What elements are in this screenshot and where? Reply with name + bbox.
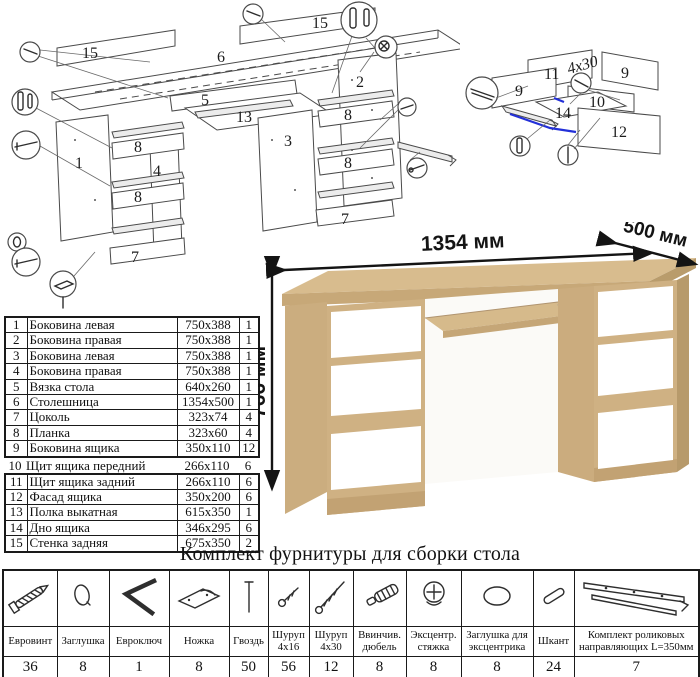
screw-callout-icon [407,158,427,178]
hardware-quantities-row: 36 8 1 8 50 56 12 8 8 8 24 7 [3,657,699,677]
parts-table-block-2: 11Щит ящика задний266x1106 12Фасад ящика… [4,473,260,553]
nail-icon [231,571,267,621]
dowel-callout-icon [398,98,416,116]
hardware-name: Шуруп 4x30 [309,627,353,657]
part-label: 8 [134,189,142,206]
part-label: 8 [344,155,352,172]
hardware-name: Эксцентр. стяжка [406,627,461,657]
dowel-pair-callout-icon [341,2,377,38]
width-dimension-label: 1354 мм [420,229,505,256]
desk-product-render: 1354 мм 500 мм 766 мм [258,222,700,542]
part-label: 2 [356,74,364,91]
hardware-kit-title: Комплект фурнитуры для сборки стола [0,543,700,566]
hardware-qty: 7 [574,657,699,677]
cam-lock-icon [409,571,459,621]
parts-table-block-1: 1Боковина левая750x3881 2Боковина правая… [4,316,260,458]
euro-screw-callout-icon [12,248,40,276]
drawer-front [331,426,421,490]
drawer-front [331,306,421,358]
euro-screw-callout-icon [12,131,40,159]
cam-lock-callout-icon [375,36,397,58]
hardware-name: Заглушка для эксцентрика [461,627,533,657]
table-row: 4Боковина правая750x3881 [5,364,259,379]
hardware-qty: 12 [309,657,353,677]
part-label: 3 [284,133,292,150]
hardware-icons-row [3,570,699,627]
part-label: 11 [544,66,559,83]
dowel-pair-callout-icon [12,89,38,115]
table-row: 7Цоколь323x744 [5,410,259,425]
table-row: 13Полка выкатная615x3501 [5,505,259,520]
part-label: 13 [236,109,252,126]
part-label: 9 [515,83,523,100]
hardware-name: Гвоздь [229,627,268,657]
hardware-name: Шуруп 4x16 [268,627,309,657]
euro-screw-icon [5,571,55,621]
hardware-qty: 8 [57,657,109,677]
nail-callout-icon [243,4,263,24]
screw-long-icon [310,571,352,621]
table-row: 2Боковина правая750x3881 [5,333,259,348]
hex-key-icon [112,571,166,621]
hardware-name: Ввинчив. дюбель [353,627,406,657]
hardware-name: Евроключ [109,627,169,657]
nail-callout-icon [20,42,40,62]
hardware-qty: 8 [353,657,406,677]
right-pedestal-side [558,286,594,482]
part-label: 14 [555,105,571,122]
height-dimension-label: 766 мм [258,346,270,418]
part-label: 5 [201,92,209,109]
wood-dowel-icon [535,571,573,621]
hardware-qty: 36 [3,657,57,677]
drawer-front [598,405,673,469]
table-row: 3Боковина левая750x3881 [5,348,259,363]
part-label: 10 [589,94,605,111]
hardware-qty: 24 [533,657,574,677]
drawer-slide-icon [576,571,696,621]
hardware-qty: 1 [109,657,169,677]
part-label: 4 [153,163,161,180]
dowel-screw-icon [355,571,405,621]
drawer-exploded-diagram: 11 9 9 10 14 12 4x30 [450,40,700,235]
drawer-front [331,359,421,416]
part-label: 8 [134,139,142,156]
hardware-kit-table: Евровинт Заглушка Евроключ Ножка Гвоздь … [2,569,700,677]
hardware-name: Евровинт [3,627,57,657]
part-label: 9 [621,65,629,82]
table-row: 1Боковина левая750x3881 [5,317,259,333]
part-label: 12 [611,124,627,141]
table-row: 8Планка323x604 [5,425,259,440]
table-row: 12Фасад ящика350x2006 [5,490,259,505]
hardware-name: Комплект роликовых направляющих L=350мм [574,627,699,657]
cap-icon [58,571,108,621]
screw-short-icon [270,571,308,621]
drawer-front [598,338,673,396]
hardware-qty: 8 [461,657,533,677]
drawer-slide-callout-icon [466,77,498,109]
hardware-name: Ножка [169,627,229,657]
drawer-front [598,286,673,337]
parts-table: 1Боковина левая750x3881 2Боковина правая… [4,316,260,553]
hardware-qty: 8 [406,657,461,677]
part-label: 1 [75,155,83,172]
foot-callout-icon [50,271,76,308]
left-pedestal-side [285,302,327,514]
assembly-instruction-sheet: 15 15 6 5 2 13 1 3 4 8 8 8 8 7 7 [0,0,700,677]
foot-icon [171,571,227,621]
table-row: 10 Щит ящика передний 266x110 6 [4,458,258,473]
part-label: 15 [82,45,98,62]
table-row: 14Дно ящика346x2956 [5,520,259,535]
part-label: 6 [217,49,225,66]
hardware-qty: 8 [169,657,229,677]
hardware-qty: 56 [268,657,309,677]
table-row: 9Боковина ящика350x11012 [5,441,259,457]
hardware-qty: 50 [229,657,268,677]
part-label: 8 [344,107,352,124]
part-label: 15 [312,15,328,32]
cam-cap-icon [467,571,527,621]
table-row: 6Столешница1354x5001 [5,395,259,410]
table-row: 11Щит ящика задний266x1106 [5,474,259,490]
table-row: 5Вязка стола640x2601 [5,379,259,394]
part-label: 7 [131,249,139,266]
hardware-names-row: Евровинт Заглушка Евроключ Ножка Гвоздь … [3,627,699,657]
hardware-name: Шкант [533,627,574,657]
hardware-name: Заглушка [57,627,109,657]
